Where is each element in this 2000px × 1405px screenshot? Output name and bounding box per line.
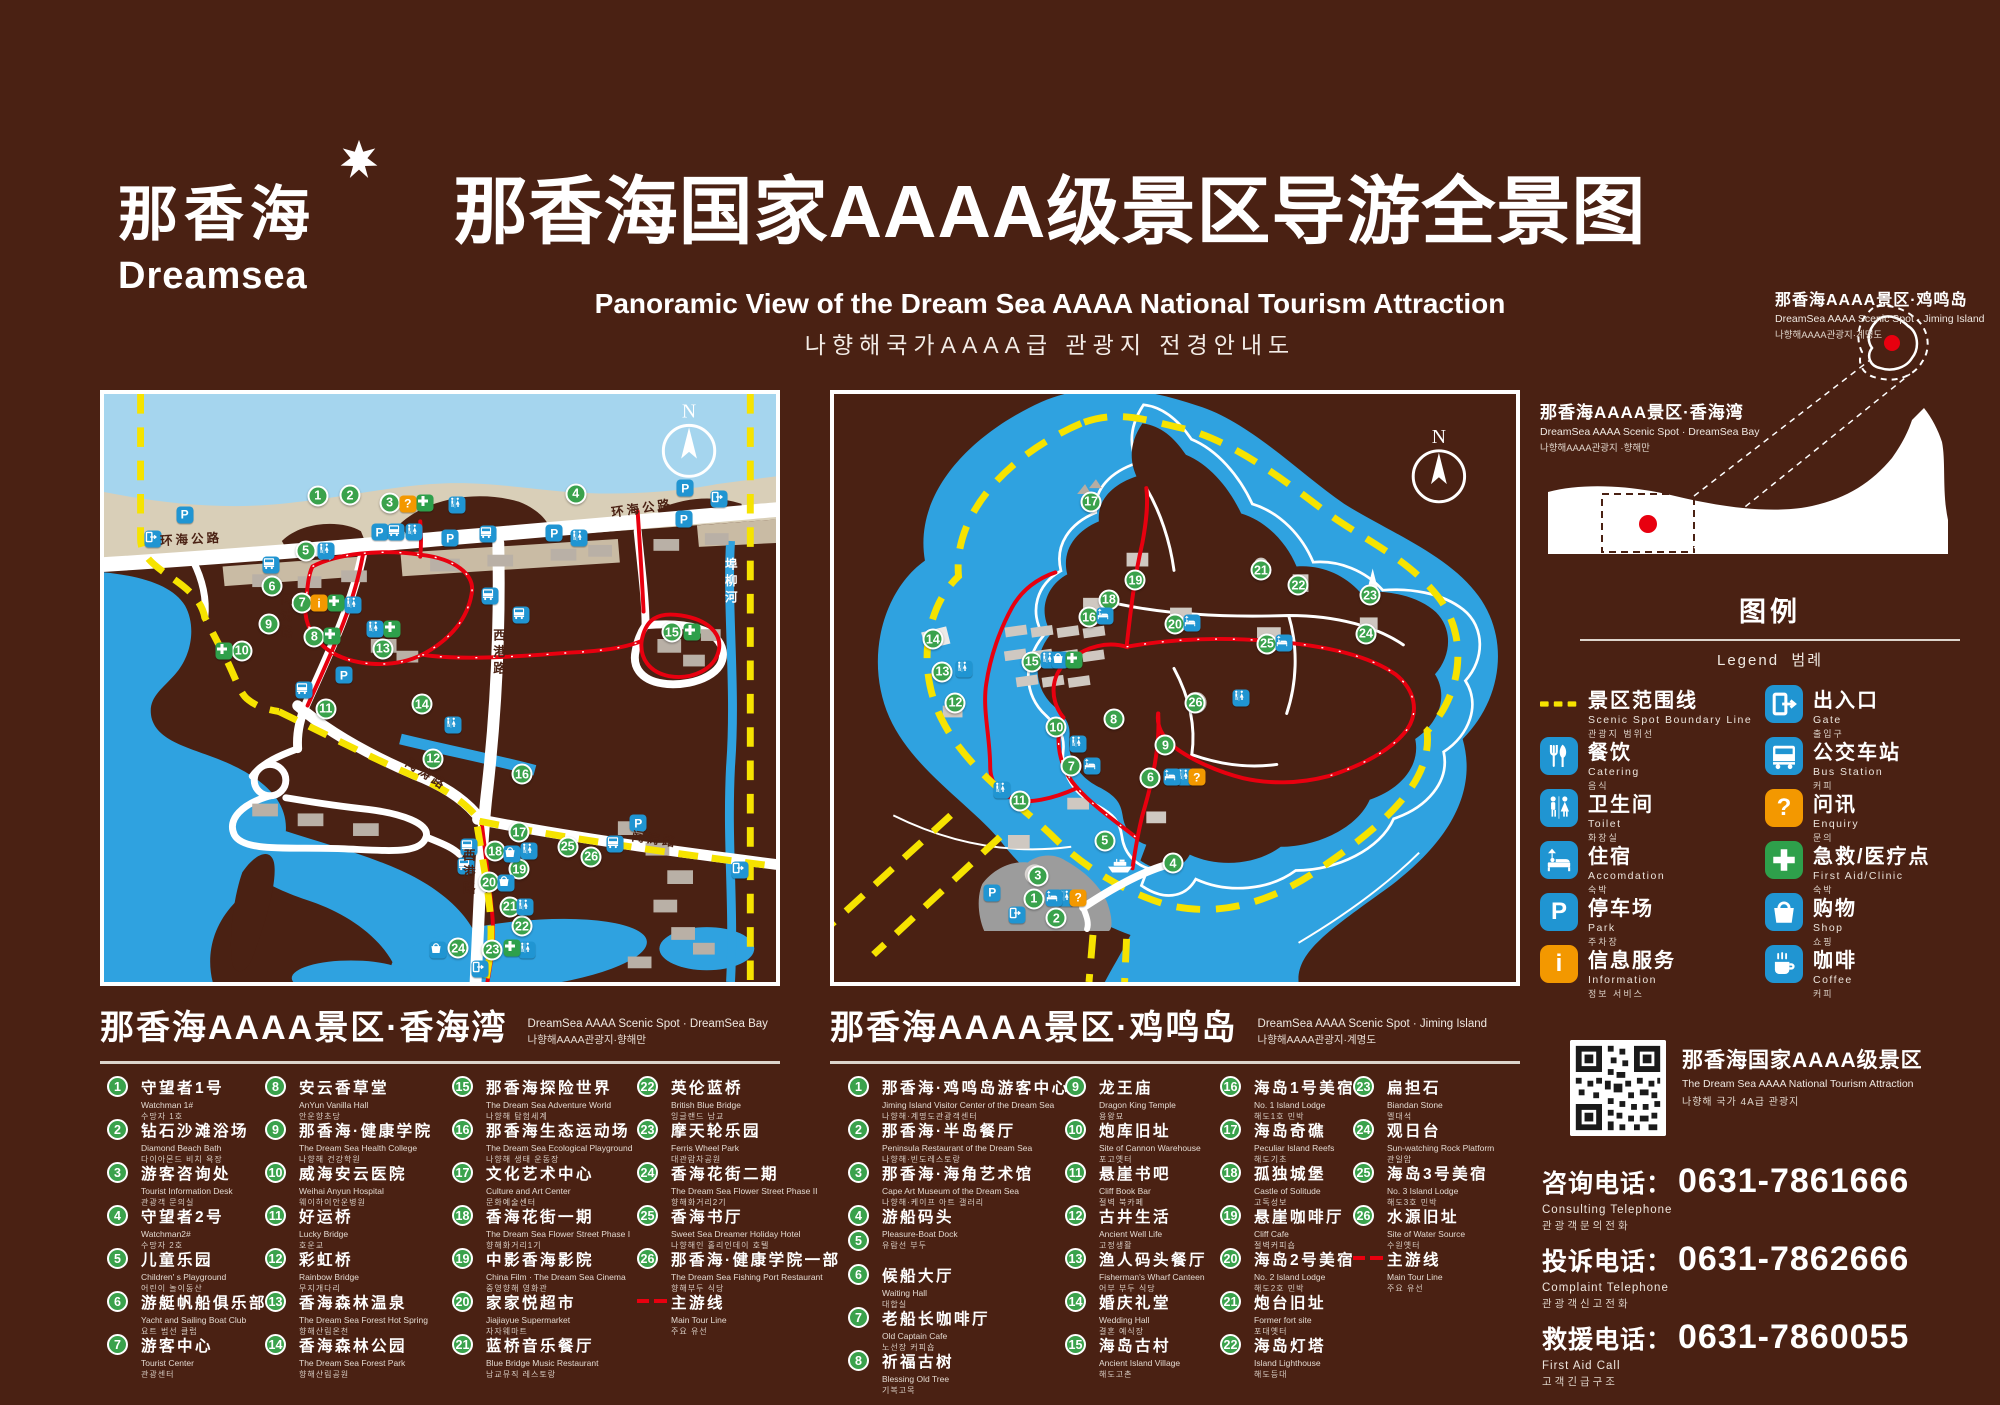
road-label: 环海公路 xyxy=(610,494,674,521)
toilet-icon xyxy=(1540,789,1578,827)
toilet-icon[interactable] xyxy=(520,843,537,860)
poi-item[interactable]: 24香海花街二期The Dream Sea Flower Street Phas… xyxy=(637,1162,841,1196)
road-label: 闻涛路 xyxy=(276,593,295,643)
map-marker-11[interactable]: 11 xyxy=(1009,790,1030,811)
toilet-icon[interactable] xyxy=(366,621,383,638)
bay-title: 那香海AAAA景区·香海湾 xyxy=(100,1000,508,1049)
map-marker-12[interactable]: 12 xyxy=(945,692,966,713)
bay-poi-list: 1守望者1号Watchman 1#수망자 1호2钻石沙滩浴场Diamond Be… xyxy=(100,1076,780,1396)
poi-number: 10 xyxy=(1065,1119,1086,1140)
legend-title: 图例 xyxy=(1540,590,2000,629)
map-marker-22[interactable]: 22 xyxy=(1288,575,1309,596)
poi-item[interactable]: 8安云香草堂AnYun Vanilla Hall안운향초당 xyxy=(265,1076,433,1110)
poi-number: 15 xyxy=(452,1076,473,1097)
poi-number: 19 xyxy=(1220,1205,1241,1226)
poi-number: 2 xyxy=(107,1119,128,1140)
ferry-icon[interactable] xyxy=(1106,858,1134,874)
poi-item[interactable]: 24观日台Sun-watching Rock Platform관일암 xyxy=(1353,1119,1494,1153)
map-marker-4[interactable]: 4 xyxy=(1162,853,1183,874)
poi-item[interactable]: 26水源旧址Site of Water Source수원옛터 xyxy=(1353,1205,1494,1239)
toilet-icon[interactable] xyxy=(448,496,465,513)
map-marker-5[interactable]: 5 xyxy=(1094,830,1115,851)
poi-item[interactable]: 23扁担石Biandan Stone멜대석 xyxy=(1353,1076,1494,1110)
poi-number: 8 xyxy=(848,1350,869,1371)
bus-icon[interactable] xyxy=(482,587,499,604)
poi-number: 24 xyxy=(637,1162,658,1183)
poi-item[interactable]: 13渔人码头餐厅Fisherman's Wharf Canteen어부 부두 식… xyxy=(1065,1248,1207,1282)
poi-number: 25 xyxy=(637,1205,658,1226)
parking-icon: P xyxy=(1540,893,1578,931)
shop-icon[interactable] xyxy=(497,875,514,892)
poi-item[interactable]: 10炮库旧址Site of Cannon Warehouse포고옛터 xyxy=(1065,1119,1207,1153)
poi-number: 22 xyxy=(637,1076,658,1097)
legend-divider xyxy=(1580,639,1960,641)
firstaid-icon[interactable] xyxy=(215,642,232,659)
poi-item[interactable]: 22英伦蓝桥British Blue Bridge잉글랜드 남교 xyxy=(637,1076,841,1110)
poi-item[interactable]: 1守望者1号Watchman 1#수망자 1호 xyxy=(107,1076,267,1110)
poi-number: 21 xyxy=(1220,1291,1241,1312)
poi-item[interactable]: 12古井生活Ancient Well Life고정생활 xyxy=(1065,1205,1207,1239)
firstaid-icon[interactable] xyxy=(684,624,701,641)
poi-item[interactable]: 19悬崖咖啡厅Cliff Cafe절벽커피숍 xyxy=(1220,1205,1355,1239)
poi-number: 15 xyxy=(1065,1334,1086,1355)
poi-number: 9 xyxy=(1065,1076,1086,1097)
phone-rescue: 救援电话： 0631-7860055 First Aid Call 고객긴급구조 xyxy=(1542,1318,1909,1389)
poi-item[interactable]: 23摩天轮乐园Ferris Wheel Park대관람차공원 xyxy=(637,1119,841,1153)
map-marker-9[interactable]: 9 xyxy=(1155,735,1176,756)
poi-item[interactable]: 12彩虹桥Rainbow Bridge무지개다리 xyxy=(265,1248,433,1282)
map-marker-17[interactable]: 17 xyxy=(509,822,530,843)
poi-item[interactable]: 主游线Main Tour Line주요 유선 xyxy=(1353,1248,1494,1282)
poi-number: 12 xyxy=(1065,1205,1086,1226)
poi-number: 6 xyxy=(107,1291,128,1312)
poi-item[interactable]: 9那香海·健康学院The Dream Sea Health College나향해… xyxy=(265,1119,433,1153)
legend-item-toilet: 卫生间Toilet화장실 xyxy=(1540,788,1765,840)
poi-item[interactable]: 20海岛2号美宿No. 2 Island Lodge해도2호 민박 xyxy=(1220,1248,1355,1282)
poi-number: 26 xyxy=(637,1248,658,1269)
enquiry-icon[interactable]: ? xyxy=(1070,889,1087,906)
toilet-icon[interactable] xyxy=(406,524,423,541)
lodge-icon[interactable] xyxy=(1276,634,1293,651)
jiming-poi-list: 1那香海·鸡鸣岛游客中心Jiming Island Visitor Center… xyxy=(830,1076,1520,1396)
poi-item[interactable]: 15那香海探险世界The Dream Sea Adventure World나향… xyxy=(452,1076,632,1110)
complaint-number[interactable]: 0631-7862666 xyxy=(1678,1240,1909,1279)
parking-icon[interactable]: P xyxy=(442,530,459,547)
poi-number: 11 xyxy=(1065,1162,1086,1183)
poi-item[interactable]: 11好运桥Lucky Bridge호운교 xyxy=(265,1205,433,1239)
poi-number: 1 xyxy=(107,1076,128,1097)
poi-item[interactable]: 26那香海·健康学院一部The Dream Sea Fishing Port R… xyxy=(637,1248,841,1282)
firstaid-icon[interactable] xyxy=(503,940,520,957)
toilet-icon[interactable] xyxy=(1070,735,1087,752)
poi-item[interactable]: 17海岛奇礁Peculiar Island Reefs해도기초 xyxy=(1220,1119,1355,1153)
map-marker-7[interactable]: 7 xyxy=(1061,756,1082,777)
poi-item[interactable]: 22海岛灯塔Island Lighthouse해도등대 xyxy=(1220,1334,1355,1368)
poi-item[interactable]: 4守望者2号Watchman2#수망자 2호 xyxy=(107,1205,267,1239)
logo-english: Dreamsea xyxy=(118,255,316,298)
poi-number: 1 xyxy=(848,1076,869,1097)
bay-poi-col-1: 1守望者1号Watchman 1#수망자 1호2钻石沙滩浴场Diamond Be… xyxy=(107,1076,267,1377)
jiming-poi-col-3: 16海岛1号美宿No. 1 Island Lodge해도1호 민박17海岛奇礁P… xyxy=(1220,1076,1355,1377)
firstaid-icon[interactable] xyxy=(324,628,341,645)
poi-item[interactable]: 8祈福古树Blessing Old Tree기복고목 xyxy=(848,1350,1070,1384)
jiming-poi-col-2: 9龙王庙Dragon King Temple용왕묘10炮库旧址Site of C… xyxy=(1065,1076,1207,1377)
poi-number: 5 xyxy=(107,1248,128,1269)
consulting-number[interactable]: 0631-7861666 xyxy=(1678,1162,1909,1201)
poi-item[interactable]: 25香海书厅Sweet Sea Dreamer Holiday Hotel나향해… xyxy=(637,1205,841,1239)
starfish-icon xyxy=(336,138,382,184)
map-marker-24[interactable]: 24 xyxy=(448,938,469,959)
firstaid-icon[interactable] xyxy=(417,495,434,512)
gate-icon[interactable] xyxy=(1009,906,1026,923)
contact-title-cn: 那香海国家AAAA级景区 xyxy=(1682,1044,1923,1074)
poi-item[interactable]: 17文化艺术中心Culture and Art Center문화예술센터 xyxy=(452,1162,632,1196)
parking-icon[interactable]: P xyxy=(984,884,1001,901)
inset-bay-cn: 那香海AAAA景区·香海湾 xyxy=(1540,398,1759,423)
map-marker-3[interactable]: 3 xyxy=(1027,865,1048,886)
lodge-icon[interactable] xyxy=(1083,757,1100,774)
bus-icon xyxy=(1765,737,1803,775)
toilet-icon[interactable] xyxy=(1233,689,1250,706)
map-marker-8[interactable]: 8 xyxy=(1103,709,1124,730)
poi-number: 18 xyxy=(452,1205,473,1226)
poi-item[interactable]: 3那香海·海角艺术馆Cape Art Museum of the Dream S… xyxy=(848,1162,1070,1196)
tour-line-symbol xyxy=(637,1299,667,1303)
bus-icon[interactable] xyxy=(480,525,497,542)
logo-chinese: 那香海 xyxy=(118,166,316,253)
poi-number: 5 xyxy=(848,1230,869,1251)
map-marker-14[interactable]: 14 xyxy=(411,694,432,715)
map-marker-11[interactable]: 11 xyxy=(315,698,336,719)
map-marker-10[interactable]: 10 xyxy=(231,640,252,661)
legend-item-firstaid: 急救/医疗点First Aid/Clinic숙박 xyxy=(1765,840,1990,892)
gate-icon[interactable] xyxy=(710,490,727,507)
poi-number: 20 xyxy=(452,1291,473,1312)
road-label: 埠柳河 xyxy=(721,557,740,607)
shop-icon xyxy=(1765,893,1803,931)
map-marker-10[interactable]: 10 xyxy=(1046,717,1067,738)
legend-item-bus: 公交车站Bus Station커피 xyxy=(1765,736,1990,788)
poi-number: 8 xyxy=(265,1076,286,1097)
jiming-map-overlay: 1234567891011121314151617181920212223242… xyxy=(834,394,1516,982)
lodge-icon xyxy=(1540,841,1578,879)
shop-icon[interactable] xyxy=(429,941,446,958)
map-dreamsea-bay[interactable]: N 12345678910111213141516171819202122232… xyxy=(100,390,780,986)
poi-number: 14 xyxy=(1065,1291,1086,1312)
poi-number: 10 xyxy=(265,1162,286,1183)
poi-number: 20 xyxy=(1220,1248,1241,1269)
poi-item[interactable]: 7老船长咖啡厅Old Captain Cafe노선장 커피숍 xyxy=(848,1307,1070,1341)
poi-item[interactable]: 3游客咨询处Tourist Information Desk관광객 문의실 xyxy=(107,1162,267,1196)
map-marker-25[interactable]: 25 xyxy=(557,836,578,857)
tour-line-symbol xyxy=(1353,1256,1383,1260)
map-marker-13[interactable]: 13 xyxy=(372,638,393,659)
map-marker-5[interactable]: 5 xyxy=(295,540,316,561)
poi-item[interactable]: 14婚庆礼堂Wedding Hall결혼 예식장 xyxy=(1065,1291,1207,1325)
firstaid-icon xyxy=(1765,841,1803,879)
contact-title-en: The Dream Sea AAAA National Tourism Attr… xyxy=(1682,1078,1923,1090)
rescue-number[interactable]: 0631-7860055 xyxy=(1678,1318,1909,1357)
map-marker-3[interactable]: 3 xyxy=(379,492,400,513)
logo: 那香海 Dreamsea xyxy=(118,166,316,298)
coffee-icon xyxy=(1765,945,1803,983)
bay-poi-col-4: 22英伦蓝桥British Blue Bridge잉글랜드 남교23摩天轮乐园F… xyxy=(637,1076,841,1334)
poi-item[interactable]: 18香海花街一期The Dream Sea Flower Street Phas… xyxy=(452,1205,632,1239)
gate-icon[interactable] xyxy=(472,961,489,978)
map-marker-22[interactable]: 22 xyxy=(511,916,532,937)
bus-icon[interactable] xyxy=(388,524,405,541)
poi-item[interactable]: 15海岛古村Ancient Island Village해도고촌 xyxy=(1065,1334,1207,1368)
poi-number: 22 xyxy=(1220,1334,1241,1355)
poi-item[interactable]: 21蓝桥音乐餐厅Blue Bridge Music Restaurant남교뮤직… xyxy=(452,1334,632,1368)
map-marker-6[interactable]: 6 xyxy=(1140,767,1161,788)
parking-icon[interactable]: P xyxy=(335,667,352,684)
toilet-icon[interactable] xyxy=(993,781,1010,798)
legend-subtitle: Legend 범례 xyxy=(1540,649,2000,670)
jiming-title: 那香海AAAA景区·鸡鸣岛 xyxy=(830,1000,1238,1049)
poi-item[interactable]: 1那香海·鸡鸣岛游客中心Jiming Island Visitor Center… xyxy=(848,1076,1070,1110)
map-marker-21[interactable]: 21 xyxy=(1250,560,1271,581)
poi-number: 17 xyxy=(1220,1119,1241,1140)
poi-item[interactable]: 20家家悦超市Jiajiayue Supermarket자자웨마트 xyxy=(452,1291,632,1325)
inset-jiming-kr: 나향해AAAA관광지·계명도 xyxy=(1775,327,1985,341)
map-marker-26[interactable]: 26 xyxy=(581,846,602,867)
bus-icon[interactable] xyxy=(606,836,623,853)
legend-item-coffee: 咖啡Coffee커피 xyxy=(1765,944,1990,996)
poi-item[interactable]: 9龙王庙Dragon King Temple용왕묘 xyxy=(1065,1076,1207,1110)
map-marker-13[interactable]: 13 xyxy=(932,661,953,682)
poi-number: 13 xyxy=(1065,1248,1086,1269)
poi-number: 2 xyxy=(848,1119,869,1140)
bay-poi-col-2: 8安云香草堂AnYun Vanilla Hall안운향초당9那香海·健康学院Th… xyxy=(265,1076,433,1377)
jiming-title-kr: 나향해AAAA관광지·계명도 xyxy=(1258,1032,1487,1047)
toilet-icon[interactable] xyxy=(955,661,972,678)
poi-item[interactable]: 14香海森林公园The Dream Sea Forest Park향해산림공원 xyxy=(265,1334,433,1368)
map-marker-1[interactable]: 1 xyxy=(1023,888,1044,909)
map-marker-15[interactable]: 15 xyxy=(661,622,682,643)
legend-item-enquiry: ?问讯Enquiry문의 xyxy=(1765,788,1990,840)
lodge-icon[interactable] xyxy=(1164,769,1181,786)
phone-complaint: 投诉电话： 0631-7862666 Complaint Telephone 관… xyxy=(1542,1240,1909,1311)
poi-number: 4 xyxy=(848,1205,869,1226)
map-marker-20[interactable]: 20 xyxy=(1165,614,1186,635)
legend-item-catering: 餐饮Catering음식 xyxy=(1540,736,1765,788)
poi-number: 7 xyxy=(107,1334,128,1355)
poi-item[interactable]: 45游船码头Pleasure-Boat Dock유람선 부두 xyxy=(848,1205,1070,1255)
legend-item-info: i信息服务Information정보 서비스 xyxy=(1540,944,1765,996)
toilet-icon[interactable] xyxy=(517,898,534,915)
map-marker-19[interactable]: 19 xyxy=(1125,570,1146,591)
poi-number: 21 xyxy=(452,1334,473,1355)
jiming-section-header: 那香海AAAA景区·鸡鸣岛 DreamSea AAAA Scenic Spot … xyxy=(830,1000,1520,1064)
map-jiming-island[interactable]: N 12345678910111213141516171819202122232… xyxy=(830,390,1520,986)
poi-item[interactable]: 21炮台旧址Former fort site포대옛터 xyxy=(1220,1291,1355,1325)
contact-title: 那香海国家AAAA级景区 The Dream Sea AAAA National… xyxy=(1682,1044,1923,1108)
map-marker-16[interactable]: 16 xyxy=(511,764,532,785)
phone-consulting: 咨询电话： 0631-7861666 Consulting Telephone … xyxy=(1542,1162,1909,1233)
legend-grid: 景区范围线Scenic Spot Boundary Line관광지 범위선出入口… xyxy=(1540,684,2000,996)
bay-title-en: DreamSea AAAA Scenic Spot · DreamSea Bay xyxy=(528,1018,768,1030)
parking-icon[interactable]: P xyxy=(371,524,388,541)
poi-number: 26 xyxy=(1353,1205,1374,1226)
poi-number: 18 xyxy=(1220,1162,1241,1183)
poi-item[interactable]: 7游客中心Tourist Center관광센터 xyxy=(107,1334,267,1368)
catering-icon xyxy=(1540,737,1578,775)
locator-inset: 那香海AAAA景区·鸡鸣岛 DreamSea AAAA Scenic Spot … xyxy=(1540,286,1995,580)
poi-number: 19 xyxy=(452,1248,473,1269)
map-marker-26[interactable]: 26 xyxy=(1185,692,1206,713)
road-label: 闻涛路 xyxy=(631,825,680,850)
poi-number: 6 xyxy=(848,1264,869,1285)
poi-item[interactable]: 6候船大厅Waiting Hall대합실 xyxy=(848,1264,1070,1298)
page-subtitle-kr: 나향해국가AAAA급 관광지 전경안내도 xyxy=(380,326,1720,360)
inset-label-jiming: 那香海AAAA景区·鸡鸣岛 DreamSea AAAA Scenic Spot … xyxy=(1775,286,1985,341)
bay-map-overlay: 1234567891011121314151617181920212223242… xyxy=(104,394,776,982)
poi-item[interactable]: 10威海安云医院Weihai Anyun Hospital웨이하이안운병원 xyxy=(265,1162,433,1196)
legend-item-shop: 购物Shop쇼핑 xyxy=(1765,892,1990,944)
poi-number: 17 xyxy=(452,1162,473,1183)
poi-item[interactable]: 25海岛3号美宿No. 3 Island Lodge해도3호 민박 xyxy=(1353,1162,1494,1196)
map-marker-15[interactable]: 15 xyxy=(1021,651,1042,672)
poi-item[interactable]: 2那香海·半岛餐厅Peninsula Restaurant of the Dre… xyxy=(848,1119,1070,1153)
map-marker-4[interactable]: 4 xyxy=(565,483,586,504)
poi-item[interactable]: 主游线Main Tour Line주요 유선 xyxy=(637,1291,841,1325)
toilet-icon[interactable] xyxy=(445,717,462,734)
parking-icon[interactable]: P xyxy=(677,480,694,497)
poi-number: 24 xyxy=(1353,1119,1374,1140)
jiming-poi-col-4: 23扁担石Biandan Stone멜대석24观日台Sun-watching R… xyxy=(1353,1076,1494,1291)
panorama-map-page: 那香海 Dreamsea 那香海国家AAAA级景区导游全景图 Panoramic… xyxy=(0,0,2000,1405)
bus-icon[interactable] xyxy=(263,556,280,573)
legend-item-boundary: 景区范围线Scenic Spot Boundary Line관광지 범위선 xyxy=(1540,684,1765,736)
map-marker-23[interactable]: 23 xyxy=(482,939,503,960)
bay-title-kr: 나향해AAAA관광지·향해만 xyxy=(528,1032,768,1047)
info-icon: i xyxy=(1540,945,1578,983)
enquiry-icon[interactable]: ? xyxy=(399,495,416,512)
parking-icon[interactable]: P xyxy=(546,525,563,542)
road-label: 西港路 xyxy=(459,848,478,898)
road-label: 西港路 xyxy=(489,628,508,678)
map-marker-2[interactable]: 2 xyxy=(339,485,360,506)
contact-title-kr: 나향해 국가 4A급 관광지 xyxy=(1682,1093,1923,1108)
inset-bay-kr: 나향해AAAA관광지 ·향해만 xyxy=(1540,440,1759,454)
inset-bay-en: DreamSea AAAA Scenic Spot · DreamSea Bay xyxy=(1540,426,1759,438)
map-marker-17[interactable]: 17 xyxy=(1081,491,1102,512)
poi-number: 16 xyxy=(452,1119,473,1140)
gate-icon xyxy=(1765,685,1803,723)
poi-number: 12 xyxy=(265,1248,286,1269)
poi-item[interactable]: 13香海森林温泉The Dream Sea Forest Hot Spring향… xyxy=(265,1291,433,1325)
legend-item-gate: 出入口Gate출입구 xyxy=(1765,684,1990,736)
info-icon[interactable]: i xyxy=(311,595,328,612)
jiming-poi-col-1: 1那香海·鸡鸣岛游客中心Jiming Island Visitor Center… xyxy=(848,1076,1070,1393)
poi-item[interactable]: 19中影香海影院China Film · The Dream Sea Cinem… xyxy=(452,1248,632,1282)
map-marker-24[interactable]: 24 xyxy=(1355,623,1376,644)
jiming-title-en: DreamSea AAAA Scenic Spot · Jiming Islan… xyxy=(1258,1018,1487,1030)
poi-item[interactable]: 2钻石沙滩浴场Diamond Beach Bath다이아몬드 비치 욕장 xyxy=(107,1119,267,1153)
toilet-icon[interactable] xyxy=(519,941,536,958)
bus-icon[interactable] xyxy=(512,606,529,623)
poi-number: 23 xyxy=(637,1119,658,1140)
qr-code xyxy=(1570,1040,1666,1136)
page-title: 那香海国家AAAA级景区导游全景图 xyxy=(380,152,1720,259)
enquiry-icon[interactable]: ? xyxy=(1188,769,1205,786)
toilet-icon[interactable] xyxy=(344,596,361,613)
boundary-icon xyxy=(1540,685,1578,723)
map-marker-14[interactable]: 14 xyxy=(922,629,943,650)
firstaid-icon[interactable] xyxy=(327,594,344,611)
parking-icon[interactable]: P xyxy=(675,511,692,528)
legend-item-lodge: 住宿Accomdation숙박 xyxy=(1540,840,1765,892)
lodge-icon[interactable] xyxy=(1046,889,1063,906)
inset-label-bay: 那香海AAAA景区·香海湾 DreamSea AAAA Scenic Spot … xyxy=(1540,398,1759,454)
poi-number: 4 xyxy=(107,1205,128,1226)
poi-number: 7 xyxy=(848,1307,869,1328)
inset-jiming-en: DreamSea AAAA Scenic Spot · Jiming Islan… xyxy=(1775,313,1985,325)
poi-number: 11 xyxy=(265,1205,286,1226)
bay-section-header: 那香海AAAA景区·香海湾 DreamSea AAAA Scenic Spot … xyxy=(100,1000,780,1064)
poi-number: 25 xyxy=(1353,1162,1374,1183)
poi-number: 3 xyxy=(848,1162,869,1183)
map-marker-23[interactable]: 23 xyxy=(1360,585,1381,606)
poi-item[interactable]: 16那香海生态运动场The Dream Sea Ecological Playg… xyxy=(452,1119,632,1153)
poi-item[interactable]: 16海岛1号美宿No. 1 Island Lodge해도1호 민박 xyxy=(1220,1076,1355,1110)
bay-poi-col-3: 15那香海探险世界The Dream Sea Adventure World나향… xyxy=(452,1076,632,1377)
map-marker-2[interactable]: 2 xyxy=(1046,908,1067,929)
enquiry-icon: ? xyxy=(1765,789,1803,827)
map-marker-1[interactable]: 1 xyxy=(307,485,328,506)
toilet-icon[interactable] xyxy=(571,530,588,547)
toilet-icon[interactable] xyxy=(317,542,334,559)
poi-number: 13 xyxy=(265,1291,286,1312)
lodge-icon[interactable] xyxy=(1097,608,1114,625)
poi-number: 3 xyxy=(107,1162,128,1183)
poi-item[interactable]: 5儿童乐园Children' s Playground어린이 놀이동산 xyxy=(107,1248,267,1282)
poi-item[interactable]: 18孤独城堡Castle of Solitude고독성보 xyxy=(1220,1162,1355,1196)
poi-number: 23 xyxy=(1353,1076,1374,1097)
map-marker-25[interactable]: 25 xyxy=(1257,633,1278,654)
lodge-icon[interactable] xyxy=(1184,615,1201,632)
legend-item-parking: P停车场Park주차장 xyxy=(1540,892,1765,944)
firstaid-icon[interactable] xyxy=(383,621,400,638)
poi-number: 16 xyxy=(1220,1076,1241,1097)
poi-item[interactable]: 6游艇帆船俱乐部Yacht and Sailing Boat Club요트 범선… xyxy=(107,1291,267,1325)
bus-icon[interactable] xyxy=(295,681,312,698)
inset-jiming-cn: 那香海AAAA景区·鸡鸣岛 xyxy=(1775,286,1985,310)
poi-number: 9 xyxy=(265,1119,286,1140)
poi-item[interactable]: 11悬崖书吧Cliff Book Bar절벽 북카페 xyxy=(1065,1162,1207,1196)
legend: 图例 Legend 범례 景区范围线Scenic Spot Boundary L… xyxy=(1540,590,2000,996)
road-label: 环海公路 xyxy=(160,527,223,549)
shop-icon[interactable] xyxy=(503,845,520,862)
map-marker-8[interactable]: 8 xyxy=(304,626,325,647)
page-subtitle-en: Panoramic View of the Dream Sea AAAA Nat… xyxy=(380,288,1720,320)
gate-icon[interactable] xyxy=(731,861,748,878)
firstaid-icon[interactable] xyxy=(1066,651,1083,668)
poi-number: 14 xyxy=(265,1334,286,1355)
parking-icon[interactable]: P xyxy=(176,506,193,523)
